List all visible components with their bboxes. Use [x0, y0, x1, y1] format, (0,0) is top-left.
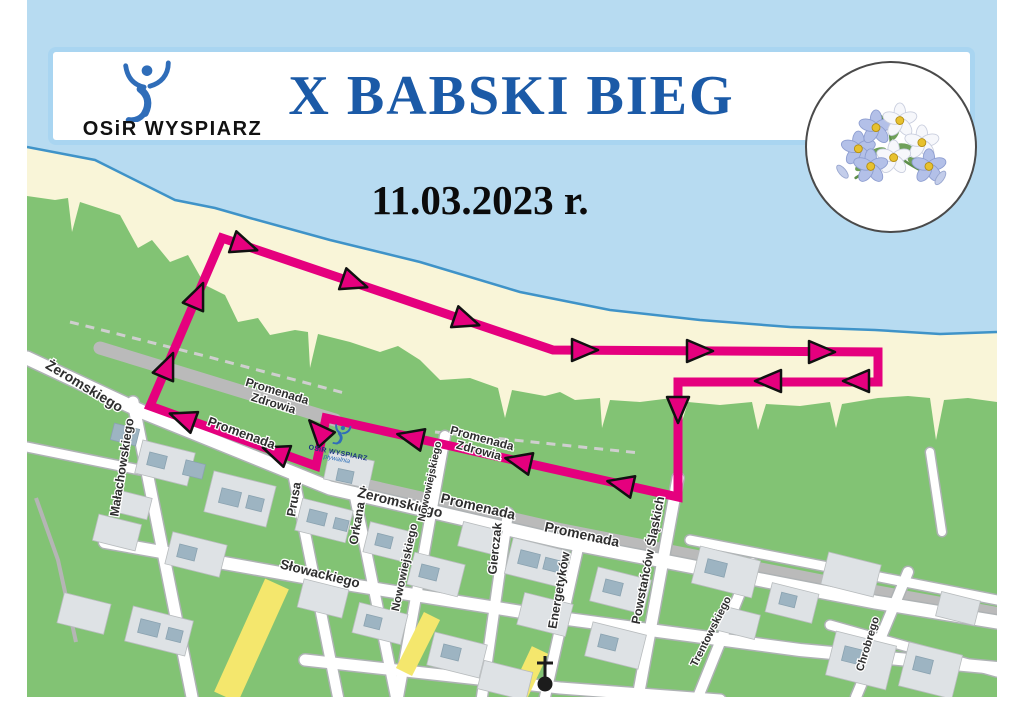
- osir-logo-text: OSiR WYSPIARZ: [65, 118, 280, 141]
- event-date: 11.03.2023 r.: [330, 176, 630, 224]
- osir-logo: OSiR WYSPIARZ: [65, 56, 280, 142]
- flower-emblem: [805, 61, 977, 233]
- osir-figure-icon: [115, 60, 179, 127]
- poster-page: { "header": { "logo_text": "OSiR WYSPIAR…: [0, 0, 1024, 724]
- osir-figure-mini-icon: [329, 422, 355, 447]
- event-title: X BABSKI BIEG: [288, 64, 734, 128]
- flowers-illustration: [816, 92, 966, 202]
